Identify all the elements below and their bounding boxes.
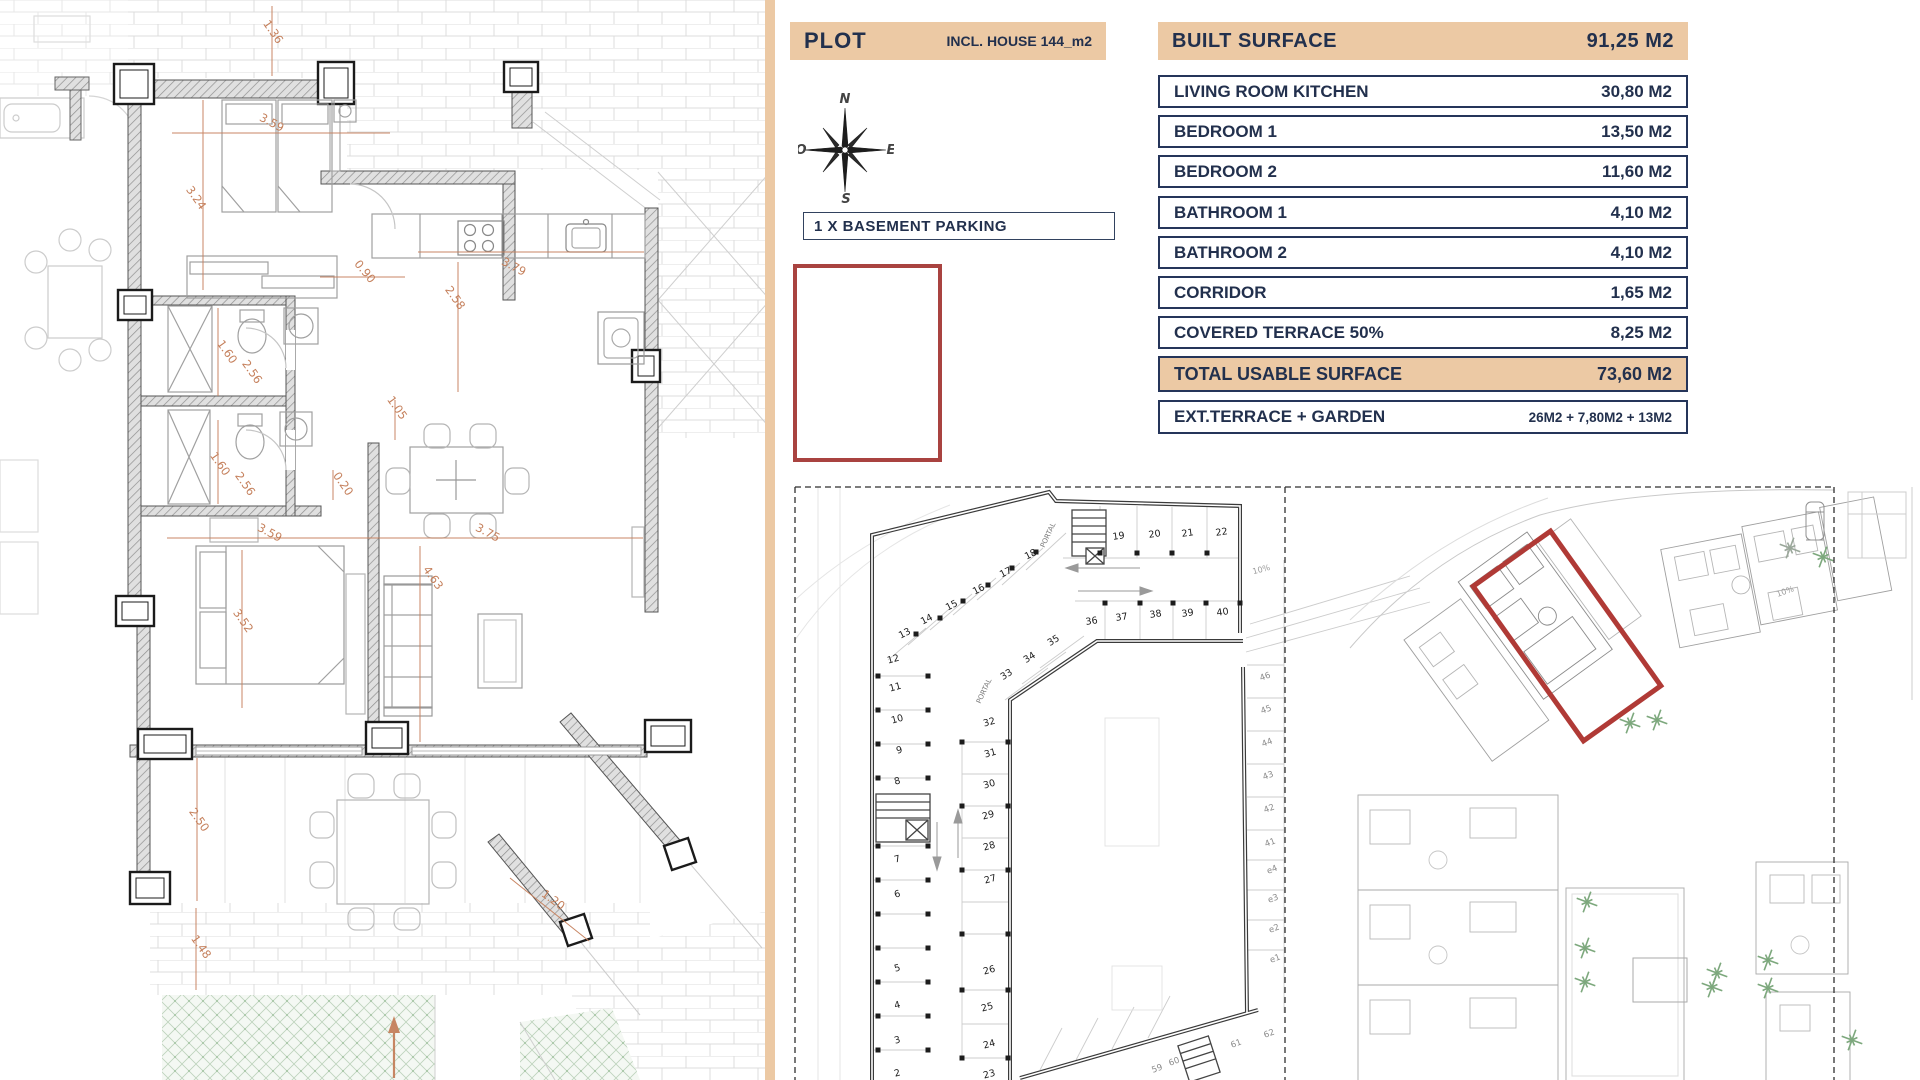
compass-east-label: E <box>887 143 894 158</box>
svg-text:2.50: 2.50 <box>186 805 212 834</box>
svg-text:e3: e3 <box>1267 893 1280 906</box>
svg-text:2: 2 <box>893 1067 902 1079</box>
svg-text:21: 21 <box>1181 527 1195 540</box>
svg-text:4: 4 <box>893 999 902 1011</box>
svg-text:3.59: 3.59 <box>255 520 284 544</box>
svg-text:43: 43 <box>1262 770 1276 783</box>
windows <box>196 747 641 755</box>
svg-text:0.90: 0.90 <box>351 257 378 286</box>
svg-text:10%: 10% <box>1775 584 1795 599</box>
svg-text:2.56: 2.56 <box>232 469 258 498</box>
row-value: 13,50 M2 <box>1601 122 1672 142</box>
terrace-table <box>337 800 429 904</box>
row-label: BATHROOM 1 <box>1174 203 1287 223</box>
svg-text:29: 29 <box>981 809 996 823</box>
svg-text:23: 23 <box>982 1068 997 1080</box>
svg-text:28: 28 <box>982 840 997 854</box>
svg-text:PORTAL: PORTAL <box>1039 521 1057 548</box>
svg-text:26: 26 <box>982 964 997 978</box>
svg-text:44: 44 <box>1261 737 1275 750</box>
svg-text:e2: e2 <box>1268 923 1281 936</box>
row-label: BATHROOM 2 <box>1174 243 1287 263</box>
table-total-row: TOTAL USABLE SURFACE 73,60 M2 <box>1158 356 1688 392</box>
svg-text:38: 38 <box>1149 608 1163 621</box>
compass-north-label: N <box>840 92 851 107</box>
basement-parking-plan: 1234567891011121314151617181920212223242… <box>795 487 1430 1080</box>
units-top-right <box>1659 497 1895 648</box>
total-value: 73,60 M2 <box>1597 364 1672 385</box>
svg-text:16: 16 <box>971 582 987 597</box>
table-exterior-row: EXT.TERRACE + GARDEN 26M2 + 7,80M2 + 13M… <box>1158 400 1688 434</box>
ramp-label: 10% <box>1252 563 1272 576</box>
apartment-floor-plan: 1.363.243.590.902.583.791.602.561.602.56… <box>0 0 790 1080</box>
svg-text:35: 35 <box>1046 633 1062 649</box>
row-label: BEDROOM 1 <box>1174 122 1277 142</box>
exterior-label: EXT.TERRACE + GARDEN <box>1174 407 1385 427</box>
compass-south-label: S <box>841 192 850 204</box>
svg-text:32: 32 <box>982 716 997 730</box>
svg-text:27: 27 <box>983 873 998 887</box>
svg-text:7: 7 <box>893 853 902 865</box>
row-label: CORRIDOR <box>1174 283 1267 303</box>
svg-text:PORTAL: PORTAL <box>975 677 993 704</box>
svg-text:2.56: 2.56 <box>239 357 265 386</box>
svg-text:e1: e1 <box>1269 953 1282 966</box>
svg-text:30: 30 <box>982 778 997 792</box>
svg-text:31: 31 <box>983 747 998 761</box>
plot-header: PLOT INCL. HOUSE 144_m2 <box>790 22 1106 60</box>
compass-rose-icon: N E S O <box>798 92 894 204</box>
compass-west-label: O <box>798 143 807 158</box>
svg-text:3: 3 <box>893 1034 902 1046</box>
units-bottom-left <box>1358 795 1558 1080</box>
table-header-row: BUILT SURFACE 91,25 M2 <box>1158 22 1688 60</box>
offsheet-structure <box>1848 487 1912 700</box>
svg-text:5: 5 <box>893 962 902 974</box>
svg-text:8: 8 <box>893 775 902 787</box>
table-row: BEDROOM 1 13,50 M2 <box>1158 115 1688 148</box>
svg-text:39: 39 <box>1181 607 1195 620</box>
units-right <box>1756 862 1850 1080</box>
svg-text:19: 19 <box>1112 530 1126 543</box>
garage-walls <box>872 492 1258 1080</box>
parking-spot-numbers: 1234567891011121314151617181920212223242… <box>886 526 1229 1080</box>
row-value: 4,10 M2 <box>1611 243 1672 263</box>
row-value: 30,80 M2 <box>1601 82 1672 102</box>
row-label: BEDROOM 2 <box>1174 162 1277 182</box>
row-label: COVERED TERRACE 50% <box>1174 323 1384 343</box>
svg-text:11: 11 <box>888 681 903 695</box>
site-and-parking-plans: 1234567891011121314151617181920212223242… <box>790 480 1920 1080</box>
row-label: LIVING ROOM KITCHEN <box>1174 82 1369 102</box>
table-row: BATHROOM 1 4,10 M2 <box>1158 196 1688 229</box>
svg-text:46: 46 <box>1259 671 1273 684</box>
svg-text:25: 25 <box>980 1001 995 1015</box>
site-ramp-label: 10% <box>1775 584 1795 599</box>
svg-text:12: 12 <box>886 653 901 667</box>
drive-arrows <box>933 564 1152 870</box>
svg-text:36: 36 <box>1085 615 1099 628</box>
svg-text:3.75: 3.75 <box>473 520 502 544</box>
svg-text:60: 60 <box>1168 1056 1182 1069</box>
svg-text:2.58: 2.58 <box>442 283 468 312</box>
palm-trees <box>1575 538 1863 1051</box>
svg-text:10: 10 <box>890 713 905 727</box>
row-value: 1,65 M2 <box>1611 283 1672 303</box>
table-row: COVERED TERRACE 50% 8,25 M2 <box>1158 316 1688 349</box>
table-row: BEDROOM 2 11,60 M2 <box>1158 155 1688 188</box>
svg-text:42: 42 <box>1263 803 1277 816</box>
row-value: 4,10 M2 <box>1611 203 1672 223</box>
exterior-value: 26M2 + 7,80M2 + 13M2 <box>1529 410 1672 425</box>
svg-text:1.60: 1.60 <box>207 449 233 478</box>
svg-text:3.52: 3.52 <box>230 606 256 635</box>
svg-text:40: 40 <box>1216 606 1230 619</box>
toilet-1 <box>238 319 266 353</box>
stove <box>458 221 504 255</box>
svg-text:34: 34 <box>1022 650 1038 666</box>
svg-text:6: 6 <box>893 888 902 900</box>
plot-title: PLOT <box>804 28 867 54</box>
highlighted-unit-outline <box>1473 531 1661 741</box>
plot-red-rectangle <box>793 264 942 462</box>
neighbour-furniture <box>0 16 137 614</box>
basement-parking-note: 1 X BASEMENT PARKING <box>803 212 1115 240</box>
total-label: TOTAL USABLE SURFACE <box>1174 364 1402 385</box>
svg-text:24: 24 <box>982 1038 997 1052</box>
table-row: BATHROOM 2 4,10 M2 <box>1158 236 1688 269</box>
row-value: 11,60 M2 <box>1602 162 1672 182</box>
garage-stairs <box>876 510 1220 1080</box>
svg-text:59: 59 <box>1151 1063 1165 1076</box>
bed-2 <box>196 546 344 684</box>
svg-text:10%: 10% <box>1252 563 1272 576</box>
svg-text:0.20: 0.20 <box>330 469 356 498</box>
svg-text:22: 22 <box>1215 526 1229 539</box>
svg-text:41: 41 <box>1264 837 1278 850</box>
table-row: CORRIDOR 1,65 M2 <box>1158 276 1688 309</box>
table-row: LIVING ROOM KITCHEN 30,80 M2 <box>1158 75 1688 108</box>
svg-text:1.05: 1.05 <box>384 393 410 422</box>
svg-text:45: 45 <box>1260 704 1274 717</box>
svg-text:9: 9 <box>895 744 904 756</box>
plot-subtitle: INCL. HOUSE 144_m2 <box>947 33 1093 49</box>
svg-text:4.63: 4.63 <box>420 563 446 592</box>
svg-text:14: 14 <box>919 612 935 627</box>
header-value: 91,25 M2 <box>1587 30 1674 53</box>
svg-text:33: 33 <box>999 667 1015 683</box>
svg-text:62: 62 <box>1263 1028 1277 1041</box>
svg-text:61: 61 <box>1230 1038 1244 1051</box>
hall-cabinet <box>346 574 365 714</box>
svg-text:e4: e4 <box>1266 864 1279 877</box>
row-value: 8,25 M2 <box>1611 323 1672 343</box>
svg-text:20: 20 <box>1148 528 1162 541</box>
svg-text:37: 37 <box>1115 611 1129 624</box>
garage-walls-inner <box>872 492 1258 1080</box>
svg-text:13: 13 <box>897 626 913 641</box>
svg-text:3.24: 3.24 <box>183 183 209 212</box>
plan-sheet: { "colors":{"tan":"#ecc9a4","navy":"#223… <box>0 0 1920 1080</box>
page-divider <box>765 0 775 1080</box>
site-plan: 10% <box>1350 487 1912 1080</box>
header-label: BUILT SURFACE <box>1172 30 1337 53</box>
